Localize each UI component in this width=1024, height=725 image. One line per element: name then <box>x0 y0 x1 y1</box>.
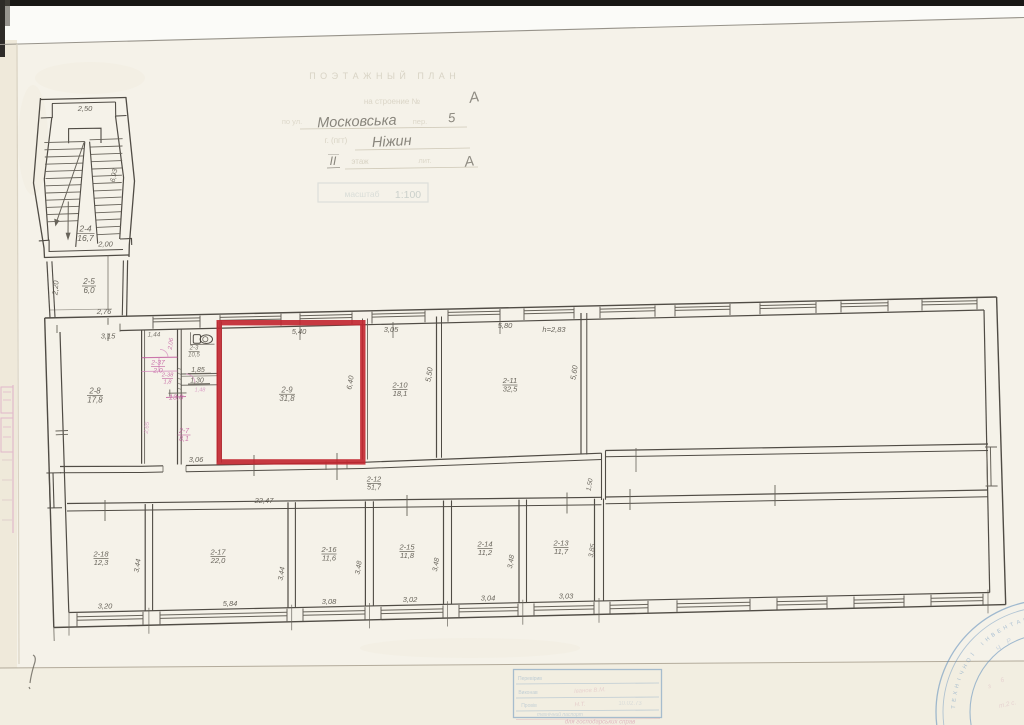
svg-text:г. (пгт): г. (пгт) <box>325 136 348 145</box>
svg-text:3,05: 3,05 <box>384 325 399 334</box>
svg-text:2-3: 2-3 <box>189 346 199 352</box>
svg-text:12,3: 12,3 <box>94 558 109 567</box>
svg-text:6,0: 6,0 <box>83 286 95 295</box>
svg-text:11,8: 11,8 <box>400 551 415 560</box>
svg-text:1,48: 1,48 <box>195 388 207 394</box>
svg-text:Н.Т.: Н.Т. <box>574 702 585 708</box>
svg-text:16,7: 16,7 <box>77 233 94 243</box>
svg-text:3,15: 3,15 <box>101 332 116 341</box>
svg-text:Виконав: Виконав <box>518 690 538 696</box>
svg-text:1,8: 1,8 <box>163 379 172 385</box>
svg-text:3,03: 3,03 <box>559 592 574 601</box>
svg-text:2-9: 2-9 <box>280 385 293 394</box>
svg-text:2,20: 2,20 <box>50 279 60 296</box>
svg-text:3,06: 3,06 <box>189 455 204 464</box>
svg-text:1:100: 1:100 <box>395 189 421 201</box>
svg-text:2-7: 2-7 <box>178 428 190 435</box>
svg-text:1,44: 1,44 <box>148 332 161 339</box>
svg-text:8,1: 8,1 <box>179 436 189 443</box>
svg-text:2,00: 2,00 <box>97 240 113 249</box>
svg-text:по ул.: по ул. <box>282 117 302 126</box>
svg-text:на строение №: на строение № <box>364 97 421 106</box>
svg-text:22,47: 22,47 <box>254 496 275 505</box>
svg-text:этаж: этаж <box>351 157 369 166</box>
svg-text:2-4: 2-4 <box>78 224 92 234</box>
svg-text:2,50: 2,50 <box>77 104 93 113</box>
svg-text:масштаб: масштаб <box>344 189 379 199</box>
svg-text:лит.: лит. <box>418 156 431 165</box>
svg-text:11,6: 11,6 <box>322 554 337 563</box>
svg-text:технічний паспорт: технічний паспорт <box>537 711 583 718</box>
svg-text:3,02: 3,02 <box>403 595 418 604</box>
svg-text:17,8: 17,8 <box>87 395 103 404</box>
svg-text:3,04: 3,04 <box>481 594 496 603</box>
svg-text:18,1: 18,1 <box>393 389 408 398</box>
svg-text:2-37: 2-37 <box>150 360 165 367</box>
svg-text:Ніжин: Ніжин <box>372 133 413 151</box>
svg-text:10.02.73: 10.02.73 <box>618 701 642 707</box>
svg-text:3,08: 3,08 <box>322 597 337 606</box>
svg-text:5,80: 5,80 <box>498 321 513 330</box>
svg-text:5,40: 5,40 <box>292 327 307 336</box>
svg-text:11,7: 11,7 <box>554 547 569 556</box>
svg-text:2-5: 2-5 <box>82 277 95 286</box>
svg-text:h=2,83: h=2,83 <box>542 325 566 334</box>
svg-text:Провів: Провів <box>521 703 537 709</box>
svg-text:пер.: пер. <box>413 117 428 126</box>
svg-text:3,20: 3,20 <box>98 602 113 611</box>
svg-text:Перевірив: Перевірив <box>518 676 542 682</box>
svg-text:для господарських справ: для господарських справ <box>565 720 636 725</box>
svg-text:2,76: 2,76 <box>96 307 112 316</box>
svg-text:31,8: 31,8 <box>279 394 295 403</box>
svg-text:2-38: 2-38 <box>161 373 174 379</box>
svg-text:П О Э Т А Ж Н Ы Й П Л А Н: П О Э Т А Ж Н Ы Й П Л А Н <box>309 70 457 81</box>
svg-text:22,0: 22,0 <box>210 556 226 565</box>
svg-text:32,5: 32,5 <box>503 385 518 394</box>
svg-text:5,84: 5,84 <box>223 599 238 608</box>
svg-text:51,7: 51,7 <box>367 483 382 492</box>
svg-text:2-8: 2-8 <box>88 387 101 396</box>
svg-text:1,30: 1,30 <box>190 378 204 385</box>
svg-text:11,2: 11,2 <box>478 548 493 557</box>
svg-text:10,5: 10,5 <box>188 353 200 359</box>
svg-text:II: II <box>330 154 337 168</box>
